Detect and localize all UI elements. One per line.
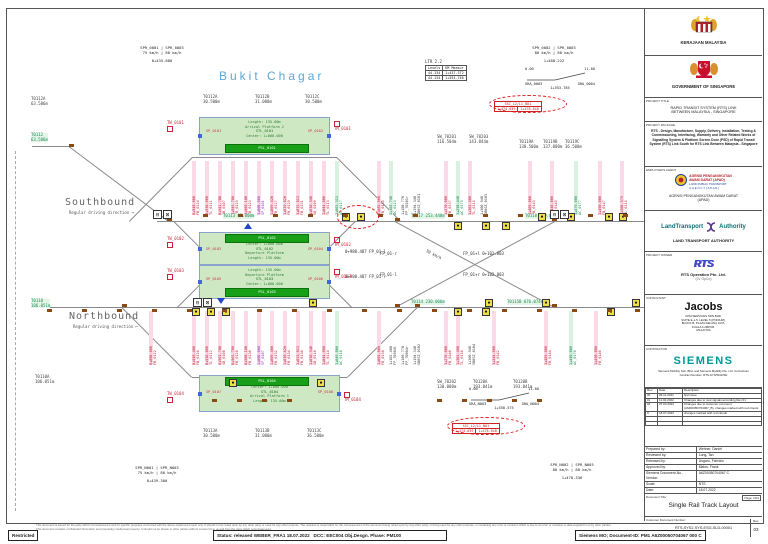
track-signal-label: 1+038.340SB_0110 bbox=[309, 311, 318, 365]
balise-marker bbox=[572, 309, 577, 312]
signal-icon: ● bbox=[317, 379, 325, 387]
track-signal-label: 0+938.000TL_0111 bbox=[205, 161, 214, 215]
balise-marker bbox=[487, 399, 492, 402]
balise-marker bbox=[448, 214, 453, 217]
track-signal-label: 1+270.000FB_0140 bbox=[444, 311, 453, 365]
equipment-box-icon: ⊠ bbox=[163, 210, 172, 219]
malaysia-label: KERAJAAN MALAYSIA bbox=[645, 40, 762, 45]
track-label: T011263.586m bbox=[31, 133, 48, 142]
speed-profile-annotation: SPR_N002 | SPR_N00380 km/h | 80 km/h1+47… bbox=[527, 462, 617, 480]
signal-icon: ● bbox=[207, 308, 215, 316]
track-signal-label: 1+188.778FP_70201r bbox=[401, 161, 410, 215]
track-signal-label: 1+044.000TL_0113 bbox=[322, 161, 331, 215]
track-label: TM_0102 bbox=[334, 237, 351, 248]
rts-logo: RTS bbox=[645, 259, 762, 270]
balise-marker bbox=[82, 309, 87, 312]
title-block: KERAJAAN MALAYSIA GOVERNMENT OF SINGAPOR… bbox=[644, 9, 762, 521]
customer-doc-rev: Rev. 03 bbox=[750, 519, 761, 537]
title-block-signoff: Prepared by:Wehner, DanielReviewed by:Lo… bbox=[645, 447, 762, 494]
title-block-project-title: PROJECT TITLE RAPID TRANSIT SYSTEM (RTS)… bbox=[645, 98, 762, 122]
track-equipment-icons: ⊟⊠ bbox=[550, 210, 569, 219]
track-label: SW_70202130.000m bbox=[437, 380, 456, 389]
project-package-text: RTS - Design, Manufacture, Supply, Deliv… bbox=[647, 129, 760, 146]
track-label: T0112C30.500m bbox=[305, 95, 322, 104]
track-signal-label: 1+300.948SB0SZ_0104 bbox=[468, 311, 477, 365]
title-block-project-owner: PROJECT OWNER RTS RTS Operation Pte. Ltd… bbox=[645, 252, 762, 295]
revision-cloud bbox=[489, 95, 567, 113]
apad-logo-icon bbox=[675, 173, 687, 191]
track-signal-label: 1+019.820FB_0129 bbox=[283, 161, 292, 215]
balise-marker bbox=[415, 304, 420, 307]
element-box-icon bbox=[167, 242, 173, 248]
southbound-track-line bbox=[157, 221, 644, 222]
signal-icon: ● bbox=[485, 299, 493, 307]
track-signal-label: 1+300.948SB0SZ_0103 bbox=[480, 161, 489, 215]
stopping-point-left: SP_0107 bbox=[206, 390, 221, 395]
page-number: Page: 1/01 bbox=[742, 495, 761, 501]
balise-marker bbox=[588, 214, 593, 217]
singapore-coat-of-arms-icon bbox=[645, 59, 762, 84]
platform-length: Length: 135.00m bbox=[200, 256, 329, 261]
signal-icon: ● bbox=[502, 222, 510, 230]
balise-marker bbox=[187, 309, 192, 312]
balise-marker bbox=[203, 214, 208, 217]
balise-marker bbox=[212, 399, 217, 402]
track-equipment-icons: ⊟⊠ bbox=[193, 298, 212, 307]
ltr-table-title: LTR 2.2 bbox=[425, 60, 442, 65]
track-label: TW_0103 bbox=[167, 269, 184, 280]
balise-marker bbox=[512, 399, 517, 402]
balise-marker bbox=[69, 144, 74, 147]
jacobs-address: CKM SERVICES SDN BHD,SUITE E-1-5, LEVEL … bbox=[645, 315, 762, 333]
siemens-logo: SIEMENS bbox=[645, 355, 762, 367]
balise-marker bbox=[257, 309, 262, 312]
track-signal-label: 0+961.780SB_0108 bbox=[218, 311, 227, 365]
signal-icon: ● bbox=[229, 379, 237, 387]
balise-marker bbox=[287, 399, 292, 402]
track-signal-label: 1+506.575SL_0115 bbox=[620, 161, 629, 215]
track-signal-label: 1+301.488TL_0115 bbox=[468, 161, 477, 215]
lta-logo: LandTransport Authority bbox=[645, 221, 762, 233]
revision-table: Rev. Date Description 0009.11.2021first … bbox=[645, 388, 762, 426]
track-label: SW_70203143.844m bbox=[469, 135, 488, 144]
title-block-revisions: Rev. Date Description 0009.11.2021first … bbox=[645, 388, 762, 447]
balise-marker bbox=[552, 304, 557, 307]
track-label: FP_01-l bbox=[380, 273, 397, 278]
track-label: T0113A30.500m bbox=[203, 429, 220, 438]
psd-bar: PSL_0103 bbox=[225, 288, 309, 297]
signal-icon: ● bbox=[605, 213, 613, 221]
balise-marker bbox=[432, 309, 437, 312]
track-label: T0113C36.500m bbox=[307, 429, 324, 438]
revision-cloud bbox=[337, 205, 379, 229]
track-label: T0110A106.051m bbox=[35, 375, 54, 384]
track-signal-label: 1+498.000FB_0146 bbox=[594, 311, 603, 365]
balise-marker bbox=[152, 309, 157, 312]
track-signal-label: 1+063.313AC_0117 bbox=[335, 161, 344, 215]
balise-marker bbox=[395, 218, 400, 221]
balise-marker bbox=[413, 214, 418, 217]
track-label: TW_0102 bbox=[167, 237, 184, 248]
platform-box-arrival-2: Length: 135.00m Arrival Platform 2 SP_01… bbox=[199, 117, 330, 155]
southbound-direction-note: Regular driving direction ⟶ bbox=[69, 210, 134, 215]
signal-icon: ● bbox=[192, 308, 200, 316]
arrow-left-icon: ⟵ bbox=[136, 324, 138, 329]
psd-bar: PSL_0104 bbox=[225, 377, 309, 386]
balise-marker bbox=[238, 214, 243, 217]
release-status: Status: released WEBER_FRA1 18.07.2022 bbox=[217, 533, 310, 538]
track-signal-label: 1+044.000TL_0114 bbox=[322, 311, 331, 365]
stopping-point-right: SP_0104 bbox=[308, 247, 323, 252]
track-signal-label: 1+018.620FB_0134 bbox=[283, 311, 292, 365]
track-equipment-icons: ⊟⊠ bbox=[153, 210, 172, 219]
track-signal-label: 1+301.488TL_0116 bbox=[456, 311, 465, 365]
balise-marker bbox=[237, 399, 242, 402]
balise-marker bbox=[273, 214, 278, 217]
track-label: T0112B31.000m bbox=[255, 95, 272, 104]
arrow-right-icon: ⟶ bbox=[132, 210, 134, 215]
title-block-lta: LandTransport Authority LAND TRANSPORT A… bbox=[645, 211, 762, 252]
platform-box-departure-b: Length: 135.00m Departure Platform SP_01… bbox=[199, 265, 330, 299]
balise-marker bbox=[117, 309, 122, 312]
track-signal-label: 1+479.000AC_0177 bbox=[574, 161, 583, 215]
track-label: T0110106.051m bbox=[31, 299, 50, 308]
northbound-label: Northbound bbox=[69, 311, 139, 322]
psd-bar: PSL_0102 bbox=[225, 234, 309, 243]
track-signal-label: 0+945.780FB_0125 bbox=[231, 161, 240, 215]
track-signal-label: 1+009.420FB_0127 bbox=[270, 161, 279, 215]
track-signal-label: 1+000.000SP_0101 bbox=[257, 161, 266, 215]
gradient-annotation: 0.0011.80 GRA_N003GRA_N004 1+550.575 bbox=[469, 387, 539, 410]
track-signal-label: 1+194.348SB0SZ_0102 bbox=[413, 311, 422, 365]
track-label: TW_0101 bbox=[167, 121, 184, 132]
element-box-icon bbox=[167, 126, 173, 132]
track-signal-label: 0+965.780FB_0128 bbox=[231, 311, 240, 365]
track-signal-label: 0+941.780SB_0107 bbox=[218, 161, 227, 215]
speed-profile-annotation: SPR_0002 | SPR_000380 km/h | 80 km/h1+48… bbox=[509, 45, 599, 63]
signal-icon: ● bbox=[482, 222, 490, 230]
stopping-point-left: SP_0105 bbox=[206, 277, 221, 282]
track-signal-label: 1+085.000FB_0135 bbox=[377, 161, 386, 215]
track-label: T0119C36.500m bbox=[565, 140, 582, 149]
track-signal-label: 1+102.488FP_70504l bbox=[389, 311, 398, 365]
track-signal-label: 0+989.180FB_0123 bbox=[244, 161, 253, 215]
title-block-singapore: GOVERNMENT OF SINGAPORE bbox=[645, 56, 762, 98]
balise-marker bbox=[222, 309, 227, 312]
track-label: FP_01+r 0+102.803 bbox=[463, 273, 504, 278]
speed-profile-annotation: SPR_0001 | SPR_000375 km/h | 80 km/h0+43… bbox=[117, 45, 207, 63]
track-label: T0119A138.500m bbox=[519, 140, 538, 149]
track-signal-label: 0+880.000FB_0122 bbox=[149, 311, 158, 365]
lta-ribbon-icon bbox=[705, 221, 717, 233]
siemens-doc-id-box: Siemens MO; Document-ID: PM1 A6Z00050704… bbox=[575, 530, 706, 541]
lta-text: LAND TRANSPORT AUTHORITY bbox=[645, 238, 762, 243]
status-box: Status: released WEBER_FRA1 18.07.2022 D… bbox=[213, 530, 447, 541]
track-signal-label: 1+409.000FB_0143 bbox=[528, 161, 537, 215]
switch-connector bbox=[329, 285, 352, 308]
platform-center: Center: 1+000.000 bbox=[200, 134, 329, 139]
train-stop-triangle-icon bbox=[244, 223, 252, 229]
jacobs-logo: Jacobs bbox=[645, 301, 762, 313]
track-label: 30 km/h bbox=[425, 249, 442, 261]
track-signal-label: 0+948.400FB_0126 bbox=[192, 311, 201, 365]
revision-cloud bbox=[447, 417, 525, 435]
speed-profile-annotation: SPR_N001 | SPR_N00375 km/h | 80 km/h0+43… bbox=[112, 465, 202, 483]
track-label: TW_0104 bbox=[167, 392, 184, 403]
equipment-box-icon: ⊟ bbox=[193, 298, 202, 307]
platform-center: Center: 1+000.000 bbox=[200, 282, 329, 287]
dcc-phase: DCC: EEC004 Obj.Desgn. Phase: PM100 bbox=[314, 533, 402, 538]
balise-marker bbox=[502, 309, 507, 312]
equipment-box-icon: ⊟ bbox=[153, 210, 162, 219]
track-label: T0115B 676.074m bbox=[507, 300, 543, 305]
track-signal-label: 1+298.448AC_0175 bbox=[456, 161, 465, 215]
balise-marker bbox=[518, 214, 523, 217]
track-signal-label: 1+009.400FB_0132 bbox=[270, 311, 279, 365]
track-signal-label: 0+948.000FB_0124 bbox=[192, 161, 201, 215]
signal-icon: ● bbox=[632, 299, 640, 307]
balise-marker bbox=[467, 309, 472, 312]
track-signal-label: 0+988.180FB_0130 bbox=[244, 311, 253, 365]
track-label: FP_01+l 0+102.803 bbox=[463, 252, 504, 257]
track-signal-label: 0+936.000TL_0112 bbox=[205, 311, 214, 365]
malaysia-coat-of-arms-icon bbox=[645, 13, 762, 40]
platform-length: Length: 135.00m bbox=[200, 399, 339, 404]
stopping-point-right: SP_0102 bbox=[308, 129, 323, 134]
balise-marker bbox=[607, 309, 612, 312]
track-layout-drawing: Bukit Chagar Southbound Regular driving … bbox=[7, 9, 644, 521]
equipment-box-icon: ⊠ bbox=[560, 210, 569, 219]
left-chainage-ruler bbox=[15, 151, 16, 511]
southbound-label: Southbound bbox=[65, 197, 135, 208]
project-title-line2: BETWEEN MALAYSIA - SINGAPORE bbox=[645, 110, 762, 114]
document-title: Single Rail Track Layout bbox=[645, 502, 762, 509]
track-signal-label: 1+344.000FB_0142 bbox=[492, 311, 501, 365]
signal-icon: ● bbox=[309, 299, 317, 307]
drawing-sheet-frame: Bukit Chagar Southbound Regular driving … bbox=[6, 8, 764, 524]
northbound-direction-note: Regular driving direction ⟵ bbox=[73, 324, 138, 329]
title-block-doc-title: Document Title: Single Rail Track Layout… bbox=[645, 494, 762, 517]
track-label: SW_70201116.504m bbox=[437, 135, 456, 144]
signal-icon: ● bbox=[454, 222, 462, 230]
balise-marker bbox=[292, 309, 297, 312]
element-box-icon bbox=[167, 397, 173, 403]
track-signal-label: 1+448.000FB_0145 bbox=[550, 161, 559, 215]
signal-icon: ● bbox=[482, 308, 490, 316]
balise-marker bbox=[537, 399, 542, 402]
balise-marker bbox=[362, 309, 367, 312]
track-label: FP_01-r bbox=[380, 252, 397, 257]
track-signal-label: 1+049.000AC_0118 bbox=[335, 311, 344, 365]
track-signal-label: 1+409.000FB_0144 bbox=[544, 311, 553, 365]
track-signal-label: 1+188.778FP_70004r bbox=[401, 311, 410, 365]
track-signal-label: 1+033.013FB_0131 bbox=[296, 161, 305, 215]
track-signal-label: 1+085.000FB_0138 bbox=[377, 311, 386, 365]
title-block-project-package: PROJECT PACKAGE RTS - Design, Manufactur… bbox=[645, 122, 762, 167]
station-name: Bukit Chagar bbox=[219, 69, 324, 83]
balise-marker bbox=[308, 214, 313, 217]
title-block-malaysia: KERAJAAN MALAYSIA bbox=[645, 9, 762, 56]
balise-marker bbox=[395, 304, 400, 307]
balise-marker bbox=[47, 309, 52, 312]
platform-box-departure-a: PSL_0102 Center: 1+000.000 SP_0103STL_01… bbox=[199, 232, 330, 265]
track-label: T0112A30.500m bbox=[203, 95, 220, 104]
track-label: T0119B137.000m bbox=[543, 140, 562, 149]
apad-text2: (APAD) bbox=[645, 198, 762, 202]
track-signal-label: 1+270.000FB_0137 bbox=[444, 161, 453, 215]
title-block-contractor: CONTRACTOR SIEMENS Siemens Mobility Sdn.… bbox=[645, 346, 762, 388]
singapore-label: GOVERNMENT OF SINGAPORE bbox=[645, 84, 762, 89]
track-signal-label: 1+194.348SB0SZ_0101 bbox=[413, 161, 422, 215]
address-line: MALAYSIA bbox=[645, 329, 762, 333]
balise-marker bbox=[437, 399, 442, 402]
equipment-box-icon: ⊟ bbox=[550, 210, 559, 219]
ltr-table: LevelsKM Measur 44.1341+437.37244.1341+5… bbox=[425, 65, 467, 81]
element-box-icon bbox=[167, 274, 173, 280]
balise-marker bbox=[397, 309, 402, 312]
track-signal-label: 1+102.748AC_0123 bbox=[389, 161, 398, 215]
track-label: TM_0104 bbox=[344, 392, 361, 403]
platform-track bbox=[192, 157, 337, 158]
stopping-point-left: SP_0101 bbox=[206, 129, 221, 134]
stopping-point-right: SP_0106 bbox=[308, 277, 323, 282]
signal-icon: ● bbox=[538, 213, 546, 221]
balise-marker bbox=[483, 214, 488, 217]
track-label: TM_0101 bbox=[334, 121, 351, 132]
equipment-box-icon: ⊠ bbox=[203, 298, 212, 307]
train-stop-triangle-icon bbox=[217, 298, 225, 304]
balise-marker bbox=[122, 304, 127, 307]
gradient-annotation: 0.0011.80 GRA_0003GRA_0004 1+553.785 bbox=[525, 67, 595, 90]
track-signal-label: 1+023.013FB_0136 bbox=[296, 311, 305, 365]
title-block-employers-agent: EMPLOYER'S AGENT AGENSI PENGANGKUTAN AWA… bbox=[645, 167, 762, 211]
balise-marker bbox=[623, 214, 628, 217]
psd-bar: PSL_0101 bbox=[225, 144, 309, 153]
balise-marker bbox=[262, 399, 267, 402]
track-signal-label: 1+498.000FB_0147 bbox=[598, 161, 607, 215]
title-block-consultant: CONSULTANT Jacobs CKM SERVICES SDN BHD,S… bbox=[645, 295, 762, 346]
track-signal-label: 1+448.000AC_0176 bbox=[569, 311, 578, 365]
stopping-point-right: SP_0108 bbox=[318, 390, 333, 395]
restricted-badge: Restricted bbox=[8, 530, 38, 541]
signal-icon: ● bbox=[454, 308, 462, 316]
track-label: TM_0103 bbox=[334, 269, 351, 280]
rts-operator-sub: (JV OpCo) bbox=[645, 277, 762, 281]
balise-marker bbox=[462, 399, 467, 402]
track-signal-label: 1+000.000SP_0107 bbox=[257, 311, 266, 365]
signal-icon: ● bbox=[542, 299, 550, 307]
signoff-row: Siemens Document-No., Version:A6Z0005070… bbox=[645, 471, 762, 482]
balise-marker bbox=[327, 309, 332, 312]
track-label: T0112A63.586m bbox=[31, 97, 48, 106]
track-label: T0113B31.000m bbox=[255, 429, 272, 438]
apad-logo-line4: A G E N C Y ( A P A D ) bbox=[689, 186, 732, 190]
contractor-line2: Contract Number: RTS-SYS/SIGPSD bbox=[645, 374, 762, 378]
balise-marker bbox=[635, 309, 640, 312]
balise-marker bbox=[537, 309, 542, 312]
track-segment bbox=[32, 146, 69, 147]
track-signal-label: 1+038.340SB_0109 bbox=[309, 161, 318, 215]
stopping-point-left: SP_0103 bbox=[206, 247, 221, 252]
